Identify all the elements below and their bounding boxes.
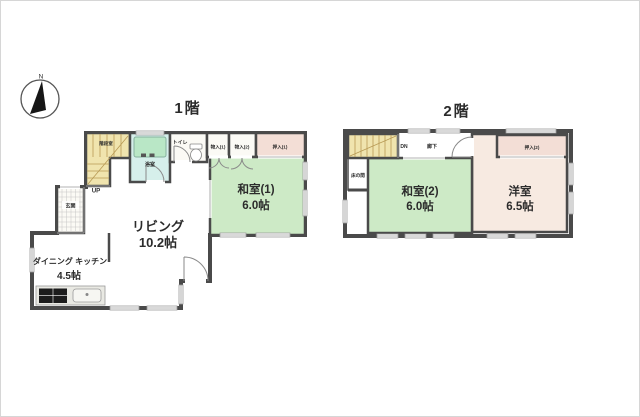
western-label: 洋室 (509, 184, 532, 198)
floor2-plan: DN 廊下 床の間 押入(2) 和室(2) 6.0帖 洋室 6.5帖 (343, 129, 573, 238)
stairwell-label: 階段室 (99, 140, 113, 147)
bathroom-label: 浴室 (145, 161, 155, 168)
north-arrow-icon (30, 81, 46, 114)
floor1-title: 1階 (174, 99, 201, 117)
toilet-bowl-icon (191, 149, 202, 161)
dk-label: ダイニング キッチン (33, 256, 107, 266)
north-label: N (39, 74, 44, 81)
tokonoma-label: 床の間 (351, 172, 365, 179)
up-label: UP (92, 188, 101, 195)
bath-fixture-icon (150, 154, 155, 158)
door-gap (470, 138, 474, 156)
toilet-label: トイレ (172, 140, 187, 146)
japanese1-label: 和室(1) (237, 182, 274, 196)
floorplan-image: N 1階 2階 (0, 0, 640, 417)
floor2-title: 2階 (443, 102, 470, 120)
japanese1-size-label: 6.0帖 (242, 198, 270, 212)
hallway-label: 廊下 (427, 143, 437, 150)
japanese2-label: 和室(2) (401, 184, 438, 198)
floor1-plan: 階段室 UP 浴室 トイレ 物入(1) 物入(2) 押入(1) 玄関 和室(1)… (30, 131, 307, 310)
floorplan-svg: N 1階 2階 (0, 0, 640, 417)
storage2-label: 物入(2) (235, 144, 250, 151)
door-gap (185, 279, 206, 283)
toilet-tank-icon (190, 144, 202, 149)
door-arc-western (452, 137, 472, 157)
bath-fixture-icon (141, 154, 146, 158)
door-arc-living (184, 257, 208, 281)
compass: N (21, 74, 59, 119)
western-size-label: 6.5帖 (506, 199, 534, 213)
dk-size-label: 4.5帖 (57, 269, 81, 282)
oshiire2-label: 押入(2) (525, 144, 540, 151)
oshiire1-label: 押入(1) (273, 144, 288, 151)
living-size-label: 10.2帖 (139, 235, 177, 250)
kitchen-counter (36, 286, 105, 305)
down-label: DN (400, 144, 408, 150)
entrance-label: 玄関 (65, 203, 75, 210)
living-label: リビング (132, 219, 184, 234)
japanese2-size-label: 6.0帖 (406, 199, 434, 213)
door-gap (146, 180, 165, 184)
storage1-label: 物入(1) (211, 144, 226, 151)
room-japanese1 (210, 157, 305, 235)
faucet-icon (86, 293, 89, 296)
